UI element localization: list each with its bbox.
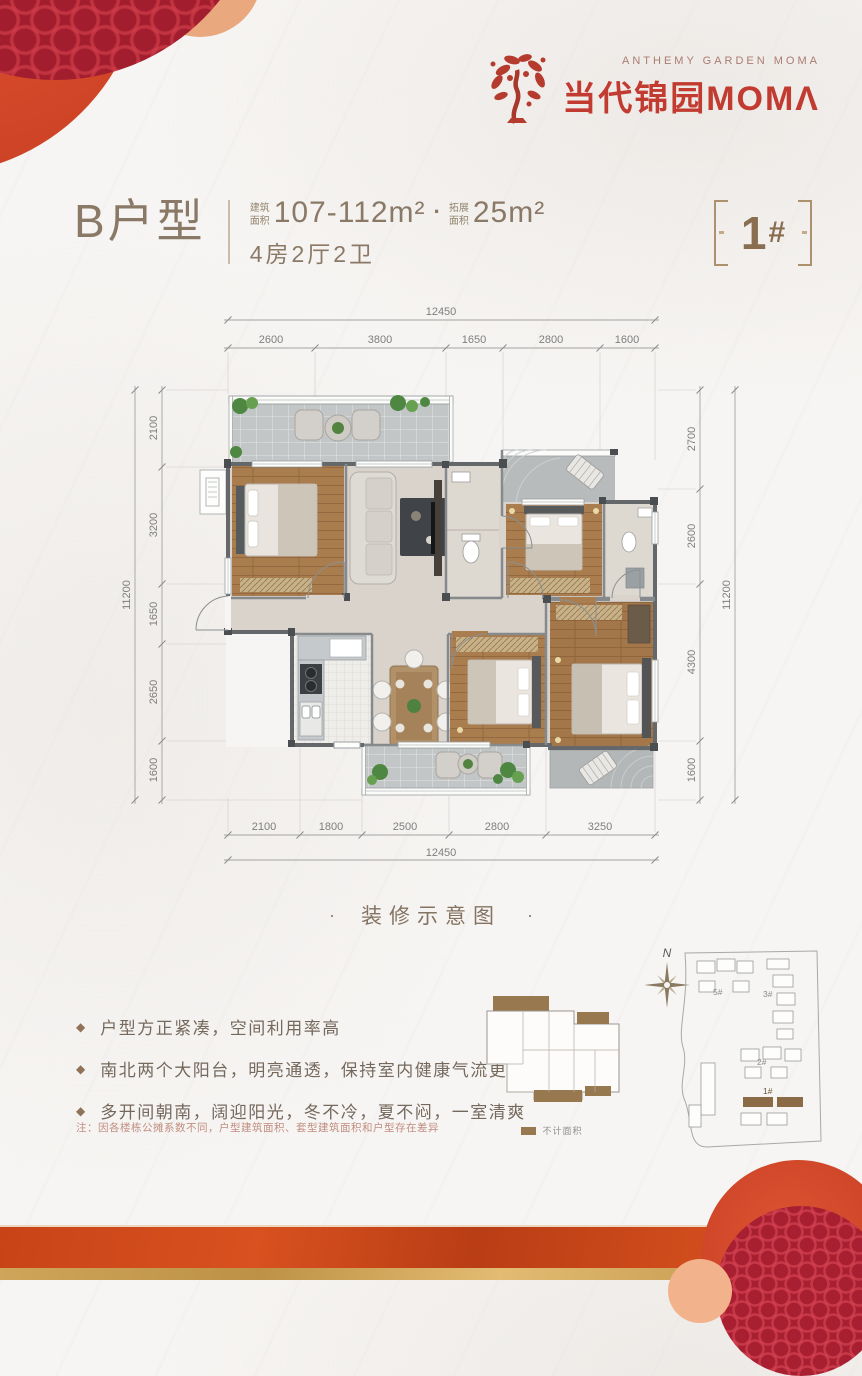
bathroom-1 [446, 466, 502, 596]
diamond-bullet-icon: ◆ [76, 1020, 85, 1034]
build-area-value: 107-112m² [274, 196, 426, 230]
tv [431, 502, 435, 554]
diamond-bullet-icon: ◆ [76, 1062, 85, 1076]
ac-platform [200, 470, 226, 514]
brand-logo: ANTHEMY GARDEN MOMA 当代锦园MOMΛ [486, 50, 820, 124]
svg-text:2600: 2600 [686, 524, 698, 548]
building-number: 1 [741, 210, 767, 256]
dim-right-total: 11200 [721, 580, 733, 610]
sink [452, 472, 470, 482]
keyplan-balcony-south [534, 1090, 582, 1102]
svg-text:1600: 1600 [686, 758, 698, 782]
bedroom-2 [506, 504, 602, 596]
caption-text: 装修示意图 [361, 900, 501, 930]
diamond-bullet-icon: ◆ [76, 1104, 85, 1118]
svg-text:2700: 2700 [686, 427, 698, 451]
unit-title-block: B户型 建筑面积 107-112m² · 拓展面积 25m² 4房2厅2卫 [74, 196, 545, 269]
bedroom-4 [550, 602, 653, 748]
shower [626, 568, 644, 588]
disclaimer-note: 注：因各楼栋公摊系数不同，户型建筑面积、套型建筑面积和户型存在差异 [76, 1120, 439, 1135]
east-balcony [502, 450, 615, 502]
svg-text:2800: 2800 [485, 821, 509, 833]
toilet [622, 532, 636, 552]
build-area-label: 建筑面积 [250, 203, 271, 228]
svg-text:2650: 2650 [148, 680, 160, 704]
svg-text:4300: 4300 [686, 650, 698, 674]
svg-text:1800: 1800 [319, 821, 343, 833]
svg-text:2100: 2100 [252, 821, 276, 833]
expand-area-label: 拓展面积 [449, 203, 470, 228]
site-plan: N 5# 3# 2# 1# [645, 945, 841, 1167]
key-plan [477, 990, 627, 1122]
building-number-hash: # [768, 216, 785, 250]
room-layout-text: 4房2厅2卫 [250, 235, 546, 269]
building-number-badge: 1 # [714, 200, 812, 266]
fridge [330, 639, 362, 657]
north-label: N [663, 946, 672, 960]
wardrobe [510, 578, 590, 593]
svg-text:3250: 3250 [588, 821, 612, 833]
expand-area-value: 25m² [473, 196, 545, 230]
svg-text:1600: 1600 [615, 334, 639, 346]
caption: · 装修示意图 · [0, 900, 862, 930]
toilet [463, 541, 479, 563]
area-separator: · [434, 199, 441, 225]
decor-peach-circle-bottomright [668, 1259, 732, 1323]
svg-text:1#: 1# [763, 1086, 773, 1096]
svg-text:2100: 2100 [148, 416, 160, 440]
svg-text:1650: 1650 [462, 334, 486, 346]
brand-zh-text: 当代锦园MOMΛ [562, 71, 820, 120]
bathroom-2 [606, 504, 655, 596]
bed-headboard [236, 486, 245, 554]
keyplan-terrace [585, 1086, 611, 1096]
svg-text:5#: 5# [713, 987, 723, 997]
svg-text:2600: 2600 [259, 334, 283, 346]
svg-text:1600: 1600 [148, 758, 160, 782]
site-building-labels: 5# 3# 2# 1# [713, 987, 773, 1096]
feature-item: ◆ 南北两个大阳台，明亮通透，保持室内健康气流更替 [76, 1056, 526, 1081]
floor-plan: 12450 2600 3800 1650 2800 1600 11200 210… [100, 295, 780, 885]
south-balcony [362, 746, 530, 795]
svg-text:1650: 1650 [148, 602, 160, 626]
keyplan-balcony-north [493, 996, 549, 1011]
svg-text:3800: 3800 [368, 334, 392, 346]
brand-en-text: ANTHEMY GARDEN MOMA [562, 55, 820, 67]
svg-text:2#: 2# [757, 1057, 767, 1067]
north-balcony [229, 395, 453, 462]
unit-type-name: B户型 [74, 196, 206, 247]
keyplan-legend: 不计面积 [477, 1124, 627, 1137]
dim-bottom-total: 12450 [426, 847, 457, 859]
balcony-chairs [295, 410, 380, 441]
terrace-rug [550, 746, 653, 788]
keyplan-balcony-east [577, 1012, 609, 1024]
bedroom-3 [450, 634, 546, 744]
svg-text:2800: 2800 [539, 334, 563, 346]
kitchen [294, 634, 372, 743]
svg-text:2500: 2500 [393, 821, 417, 833]
window-bench [240, 578, 312, 592]
title-divider [228, 200, 230, 264]
wardrobe [556, 605, 622, 620]
bedroom-master-left [232, 466, 344, 596]
tree-icon [486, 50, 548, 124]
floor-plan-body [196, 395, 658, 795]
highlighted-building-1 [743, 1097, 803, 1107]
feature-item: ◆ 户型方正紧凑，空间利用率高 [76, 1014, 526, 1039]
dim-left-total: 11200 [121, 580, 133, 610]
legend-swatch [521, 1127, 536, 1135]
tv-cabinet [434, 480, 442, 576]
sink [638, 508, 652, 517]
compass-icon: N [645, 946, 690, 1008]
svg-text:3#: 3# [763, 989, 773, 999]
svg-text:3200: 3200 [148, 513, 160, 537]
sink [302, 706, 310, 718]
dim-top-total: 12450 [426, 306, 457, 318]
